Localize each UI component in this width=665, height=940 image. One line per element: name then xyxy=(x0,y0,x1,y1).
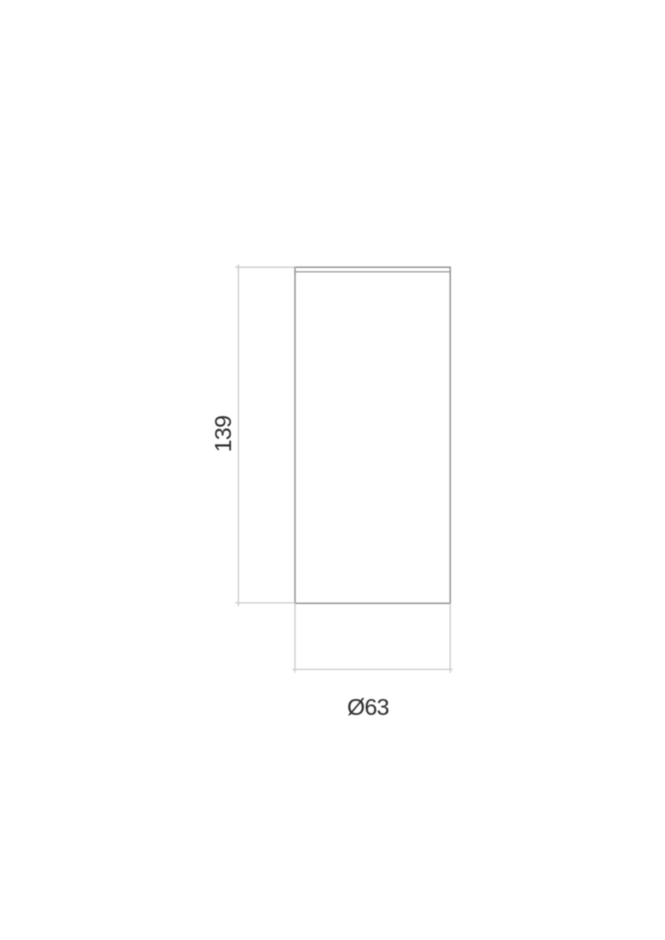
svg-text:139: 139 xyxy=(210,416,236,453)
svg-text:Ø63: Ø63 xyxy=(347,694,389,720)
